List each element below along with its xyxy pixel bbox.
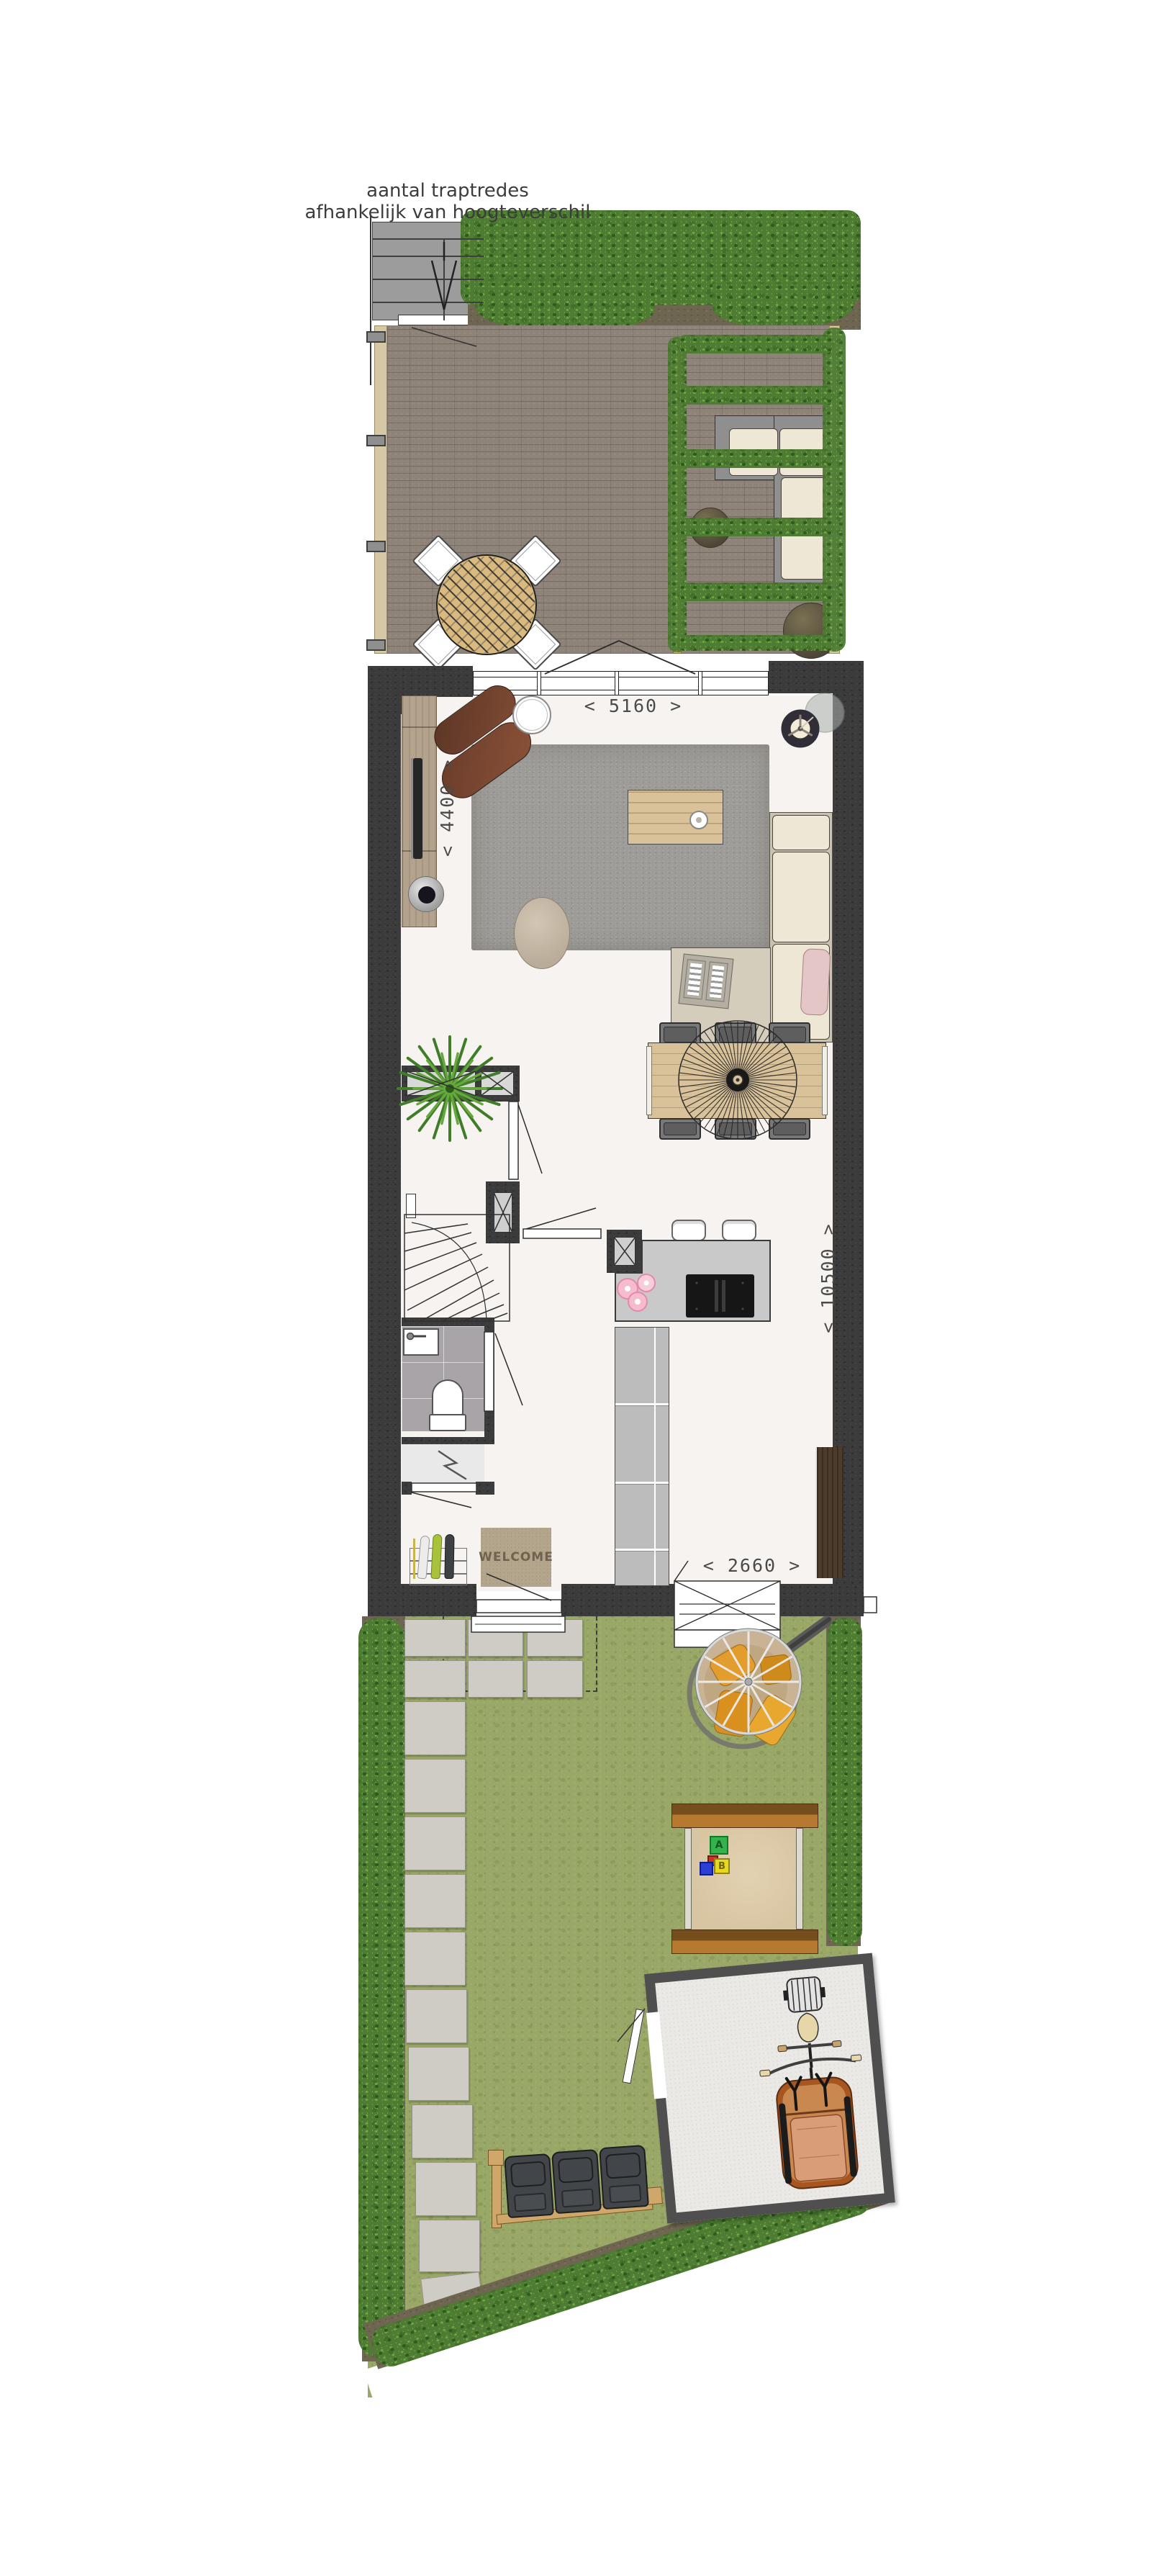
bar-stool [722, 1220, 756, 1241]
paving-slab [404, 1816, 466, 1870]
toilet-cistern [429, 1414, 466, 1431]
climbing-plant [677, 518, 835, 536]
stairs-note: aantal traptredes afhankelijk van hoogte… [268, 180, 628, 223]
dining-chair [769, 1118, 810, 1140]
paving-slab [404, 1701, 466, 1755]
sideboard-seam [402, 726, 436, 728]
bin-lid [558, 2156, 594, 2183]
meter-cupboard-floor [402, 1444, 484, 1483]
dimension-living-width: < 4400 > [437, 763, 458, 857]
sofa-tray [679, 954, 734, 1009]
paving-slab [404, 1619, 466, 1657]
toy-block-a: A [710, 1836, 728, 1855]
climbing-plant [668, 337, 687, 652]
terrace-round-table [436, 554, 537, 655]
shoe [444, 1534, 454, 1579]
paving-slab [527, 1619, 583, 1657]
cabinet-seam [654, 1328, 656, 1585]
decor-bowl-center [418, 886, 435, 904]
exterior-wall-left [368, 695, 401, 1616]
bin-body [609, 2184, 642, 2203]
climbing-plant [677, 449, 835, 468]
sandbox-bench [671, 1803, 818, 1828]
toilet-sink [403, 1328, 439, 1356]
shoe-rack [410, 1548, 467, 1585]
stair-newel [406, 1194, 416, 1218]
garden-hedge-right [828, 1618, 862, 1946]
umbrella [413, 1539, 415, 1579]
terrace-post [366, 639, 386, 651]
dimension-rear-width: < 5160 > [561, 695, 705, 716]
paving-slab [404, 1660, 466, 1698]
mullion [698, 672, 702, 695]
bin-lid [510, 2161, 546, 2187]
pink-pillow [800, 948, 831, 1016]
exterior-wall-front [780, 1584, 864, 1616]
sofa-cushion [772, 815, 830, 850]
paving-slab [412, 2104, 473, 2158]
roof-terrace-hedge [475, 279, 655, 333]
paving-slab [415, 2162, 476, 2216]
meter-cupboard-wall [476, 1482, 494, 1495]
mullion [615, 672, 619, 695]
tv [411, 758, 422, 859]
cup [689, 811, 708, 829]
shoe [430, 1534, 442, 1580]
meter-cupboard-wall [402, 1482, 412, 1495]
rear-sliding-doors [473, 671, 769, 695]
exterior-wall [769, 661, 864, 693]
climbing-plant [677, 635, 835, 651]
sandbox-sand [692, 1828, 796, 1929]
bar-stool [671, 1220, 706, 1241]
stair-column-box [494, 1192, 512, 1233]
garden-shed [644, 1953, 895, 2224]
sandbox-rail [796, 1828, 803, 1929]
sofa-cushion [772, 852, 830, 942]
closet-box [481, 1071, 514, 1096]
bin-body [514, 2192, 547, 2212]
doormat: WELCOME [481, 1528, 551, 1587]
climbing-plant [677, 582, 835, 601]
sandbox-bench [671, 1929, 818, 1954]
cabinet-seam [615, 1403, 669, 1405]
decor-bowl [408, 876, 444, 912]
bin-body [561, 2188, 594, 2207]
side-table [512, 695, 551, 734]
roof-terrace-hedge [713, 282, 854, 328]
bin-enclosure-cap [488, 2150, 504, 2166]
waste-bin [599, 2145, 649, 2210]
floor-plan-canvas: aantal traptredes afhankelijk van hoogte… [0, 0, 1176, 2576]
terrace-post [366, 435, 386, 446]
toy-block-blue [700, 1862, 713, 1875]
paving-slab [404, 1932, 466, 1986]
meter-cupboard-wall [402, 1437, 494, 1444]
paving-slab [468, 1619, 523, 1657]
terrace-edge-beam [374, 325, 387, 654]
dimension-front-width: < 2660 > [680, 1555, 824, 1576]
dining-chair [659, 1118, 701, 1140]
toilet-wall [402, 1318, 494, 1326]
stairs-note-line1: aantal traptredes [268, 180, 628, 202]
magazine [683, 959, 706, 999]
terrace-post [366, 331, 386, 343]
magazine [705, 961, 728, 1001]
paving-slab [468, 1660, 523, 1698]
side-step [864, 1597, 877, 1613]
cup-center [696, 817, 702, 823]
exterior-wall [368, 666, 473, 697]
bin-lid [605, 2152, 641, 2179]
waste-bin [551, 2149, 602, 2214]
cabinet-seam [615, 1482, 669, 1484]
toilet-wall [484, 1318, 494, 1441]
garden-hedge-left [358, 1618, 404, 2358]
exterior-wall-front [368, 1584, 476, 1616]
kitchen-tall-cabinets [615, 1327, 669, 1586]
table-end-cap [646, 1046, 652, 1115]
paving-slab [404, 1874, 466, 1928]
dining-table [648, 1042, 826, 1119]
toy-block-b: B [714, 1858, 730, 1874]
toilet [432, 1379, 463, 1418]
terrace-post [366, 541, 386, 552]
kitchen-column-box [614, 1237, 636, 1266]
paving-slab [408, 2047, 469, 2101]
site-boundary-line [370, 216, 371, 385]
paving-slab [527, 1660, 583, 1698]
paving-slab [404, 1759, 466, 1813]
coffee-table [628, 791, 723, 844]
exterior-wall-front [561, 1584, 674, 1616]
dining-chair [715, 1118, 756, 1140]
floor-pouf [514, 897, 570, 969]
paving-slab [419, 2220, 480, 2272]
glazing-line [474, 677, 768, 677]
mullion [537, 672, 541, 695]
climbing-plant [823, 328, 846, 652]
doormat-text: WELCOME [479, 1550, 553, 1564]
dimension-depth: < 10500 > [818, 1218, 839, 1338]
closet-box [407, 1071, 476, 1096]
paving-slab [406, 1989, 467, 2043]
waste-bin [504, 2153, 554, 2218]
table-end-cap [822, 1046, 828, 1115]
glazing-line [474, 690, 768, 690]
climbing-plant [677, 386, 835, 405]
cabinet-seam [615, 1549, 669, 1551]
stairs-note-line2: afhankelijk van hoogteverschil [268, 202, 628, 223]
climbing-plant [677, 335, 835, 353]
sandbox-rail [684, 1828, 692, 1929]
